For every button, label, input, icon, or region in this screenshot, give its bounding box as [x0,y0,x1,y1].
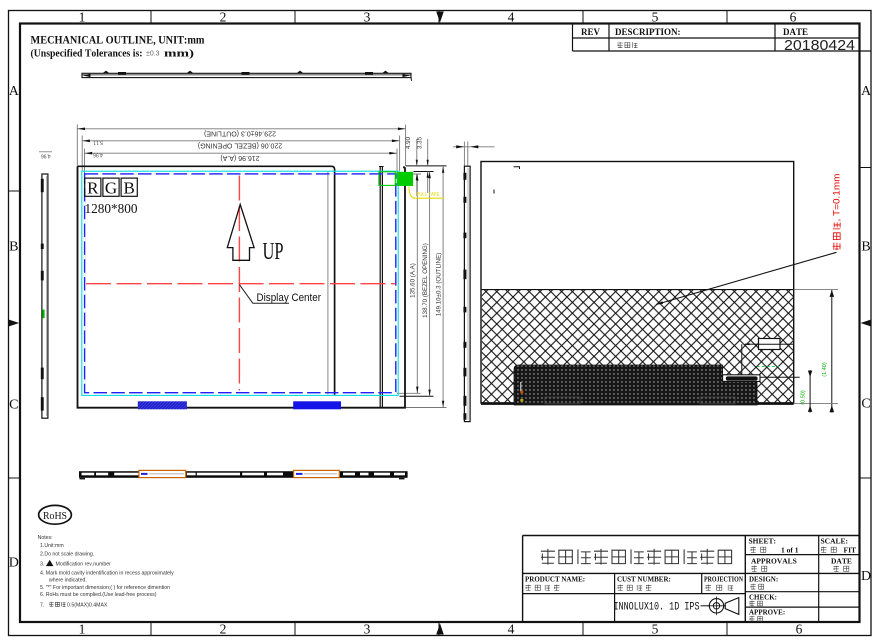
svg-text:4.90: 4.90 [405,136,412,149]
svg-text:4: 4 [508,9,515,24]
svg-text:1.Unit:mm: 1.Unit:mm [40,543,64,549]
svg-text:229.46±0.3 (OUTLINE): 229.46±0.3 (OUTLINE) [204,130,276,137]
svg-text:5: 5 [652,621,659,636]
svg-text:UP: UP [263,239,284,265]
svg-text:G: G [105,179,117,198]
svg-text:20180424: 20180424 [784,37,855,54]
svg-text:SCALE:: SCALE: [821,537,849,546]
svg-text:CUST NUMBER:: CUST NUMBER: [617,576,671,584]
svg-text:5.11: 5.11 [93,139,103,145]
svg-text:(0.50): (0.50) [801,390,807,405]
svg-text:DESCRIPTION:: DESCRIPTION: [615,27,681,37]
svg-text:D: D [861,569,871,584]
svg-text:Notes:: Notes: [38,535,53,541]
svg-text:1: 1 [79,9,86,24]
svg-text:CHECK:: CHECK: [749,594,777,602]
svg-text:(1.40): (1.40) [822,362,828,377]
svg-text:3: 3 [364,9,371,24]
svg-text:C: C [9,398,18,413]
svg-text:149.10±0.3 (OUTLINE): 149.10±0.3 (OUTLINE) [435,253,442,317]
svg-text:mm): mm) [164,49,194,60]
svg-text:3.35: 3.35 [417,136,424,149]
svg-text:5: 5 [652,9,659,24]
svg-text:(Unspecified Tolerances is:: (Unspecified Tolerances is: [31,49,143,60]
svg-text:APPROVALS: APPROVALS [751,557,797,566]
svg-text:PROJECTION: PROJECTION [704,576,743,584]
svg-text:4. Mark mold cavity indentific: 4. Mark mold cavity indentification in r… [40,570,174,576]
svg-text:B: B [124,179,135,198]
svg-text:where indicated.: where indicated. [49,577,87,583]
svg-text:1 of 1: 1 of 1 [781,546,799,555]
svg-text:216.96 (A.A): 216.96 (A.A) [220,154,259,161]
svg-text:6: 6 [796,621,803,636]
svg-text:4.96: 4.96 [93,152,103,158]
svg-text:DESIGN:: DESIGN: [749,576,778,584]
svg-text:135.60 (A.A): 135.60 (A.A) [410,263,417,298]
svg-text:RoHS: RoHS [43,510,67,522]
svg-text:D: D [9,556,19,571]
svg-text:138.70 (BEZEL OPENING): 138.70 (BEZEL OPENING) [422,243,429,318]
svg-text:REV: REV [581,27,601,37]
svg-text:Display Center: Display Center [257,292,322,304]
svg-text:Modification rev.number: Modification rev.number [56,562,112,568]
svg-text:, T=0.1mm: , T=0.1mm [832,174,842,222]
svg-text:MECHANICAL OUTLINE, UNIT:mm: MECHANICAL OUTLINE, UNIT:mm [31,35,205,47]
svg-text:R: R [87,179,99,198]
svg-text:1: 1 [79,621,86,636]
svg-text:C: C [861,397,870,412]
svg-text:3.: 3. [40,562,44,568]
svg-text:PULL TAPE: PULL TAPE [417,192,440,198]
svg-text:PRODUCT NAME:: PRODUCT NAME: [525,576,585,584]
svg-text:2.Do not scale drawing.: 2.Do not scale drawing. [40,551,94,557]
svg-text:0.5(MAX)0.4MAX: 0.5(MAX)0.4MAX [67,603,108,609]
svg-text:DATE: DATE [783,27,808,37]
svg-text:A: A [861,84,872,99]
svg-text:1280*800: 1280*800 [85,202,138,217]
svg-text:6: 6 [790,9,797,24]
svg-text:4.96: 4.96 [41,152,51,158]
svg-text:SHEET:: SHEET: [749,537,777,546]
svg-text:B: B [9,240,18,255]
svg-text:3: 3 [364,621,371,636]
svg-text:2: 2 [220,621,227,636]
svg-text:APPROVE:: APPROVE: [749,609,785,617]
svg-text:FIT: FIT [844,546,857,555]
svg-text:5. "*" For important dimension: 5. "*" For important dimension;( ) for r… [40,585,170,591]
svg-text:A: A [9,84,20,99]
svg-text:±0.3: ±0.3 [146,51,160,58]
svg-text:2: 2 [220,9,227,24]
svg-text:4: 4 [508,621,515,636]
svg-text:DATE: DATE [831,557,852,566]
svg-text:220.06 (BEZEL OPENING): 220.06 (BEZEL OPENING) [198,142,282,149]
svg-text:6. RoHs must be complied.(Use: 6. RoHs must be complied.(Use lead-free … [40,592,157,598]
svg-text:B: B [861,240,870,255]
svg-text:7.: 7. [40,603,44,609]
svg-text:INNOLUX10. 1D IPS: INNOLUX10. 1D IPS [614,602,700,614]
